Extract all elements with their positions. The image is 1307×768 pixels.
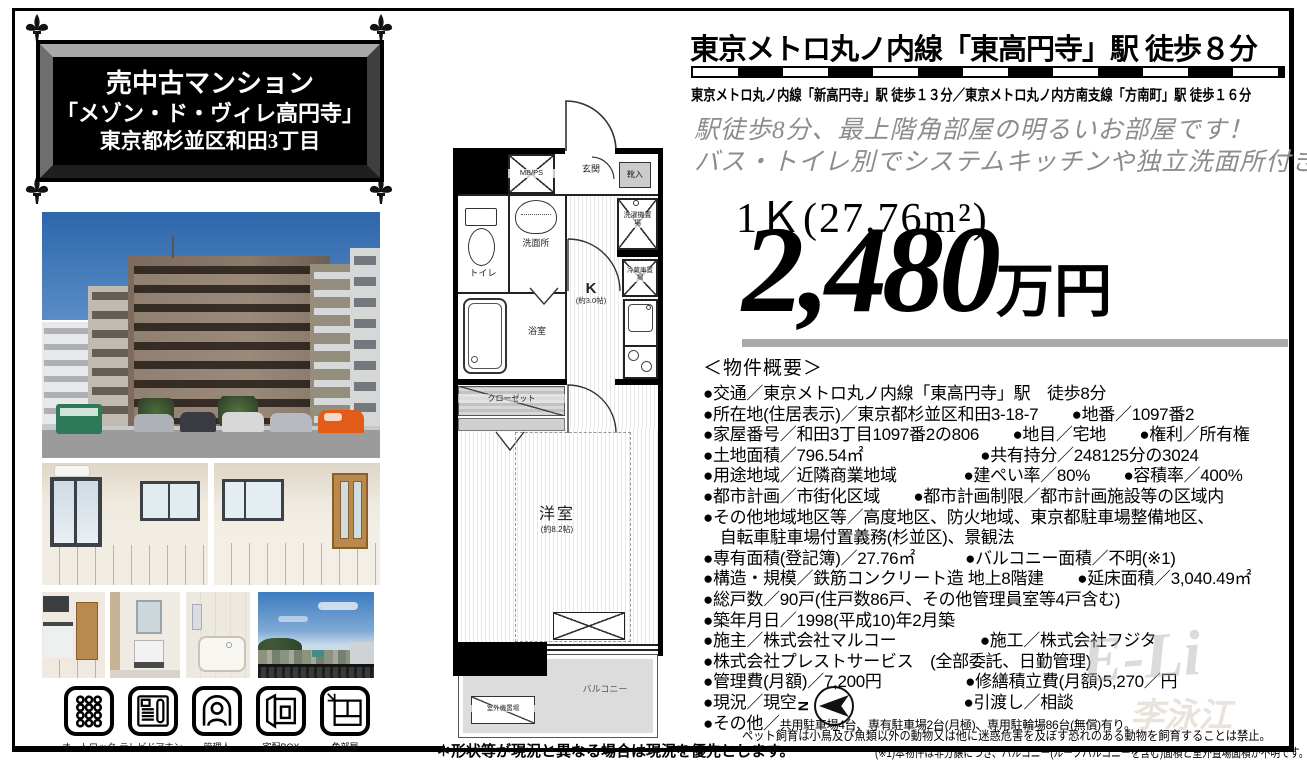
overview-line: ●その他地域地区等／高度地区、防火地域、東京都駐車場整備地区、 [703, 503, 1295, 524]
cloud [318, 602, 358, 610]
flyer-page: { "title_box": { "line1": "売中古マンション", "l… [0, 0, 1307, 768]
building-photo [42, 212, 380, 458]
wall [615, 379, 663, 385]
toilet-tank [465, 208, 497, 226]
overview-line: ●用途地域／近隣商業地域 ●建ぺい率／80% ●容積率／400% [703, 461, 1295, 482]
right-building-balconies [314, 272, 352, 424]
autolock-icon [64, 686, 114, 736]
ceiling-dash-outline [515, 432, 631, 642]
corner-room-label: 角部屋 [308, 740, 382, 753]
door-mullion [74, 477, 77, 547]
catch-copy-line1: 駅徒歩8分、最上階角部屋の明るいお部屋です！ [694, 110, 1254, 146]
wood-floor [42, 545, 208, 585]
car-silver [134, 414, 174, 432]
catch-copy-line2: バス・トイレ別でシステムキッチンや独立洗面所付き [694, 142, 1307, 178]
window-mullion [244, 479, 246, 521]
balcony-rail [258, 666, 374, 678]
room-window-box [553, 612, 625, 640]
antenna [172, 236, 174, 258]
interior-photo-1 [42, 463, 208, 585]
rail-top-bar [258, 664, 374, 667]
kitchen-size-label: (約3.0帖) [561, 297, 621, 306]
delivery-box-icon [256, 686, 306, 736]
overview-line: ●管理費(月額)／7,200円 ●修繕積立費(月額)5,270／円 [703, 667, 1295, 688]
overview-heading: ＜物件概要＞ [703, 353, 823, 380]
bathtub [198, 636, 246, 672]
main-station-heading: 東京メトロ丸ノ内線「東高円寺」駅 徒歩８分 [690, 26, 1290, 68]
shape-note: ＊形状等が現況と異なる場合は現況を優先とします。 [436, 740, 795, 761]
vanity-kick [134, 662, 164, 668]
overview-line: ●施主／株式会社マルコー ●施工／株式会社フジタ [703, 626, 1295, 647]
striped-divider-bar [691, 66, 1285, 78]
bath-label: 浴室 [513, 326, 561, 336]
room-door-arc [567, 384, 617, 434]
window [222, 479, 284, 521]
overview-list: ●交通／東京メトロ丸ノ内線「東高円寺」駅 徒歩8分 ●所在地(住居表示)／東京都… [703, 379, 1295, 729]
floor [110, 670, 180, 678]
balcony-note: (※1)本物件は非分譲につき、バルコニー(ルーフバルコニーを含む)面積と室外置場… [875, 742, 1307, 761]
overview-line: ●都市計画／市街化区域 ●都市計画制限／都市計画施設等の区域内 [703, 482, 1295, 503]
shoe-box-label: 靴入 [619, 170, 651, 179]
room-size-label: (約8.2帖) [505, 525, 609, 534]
bath-folding-door [529, 287, 559, 305]
balcony-view-photo [258, 592, 374, 678]
washroom-photo [110, 592, 180, 678]
wash-basin [515, 200, 557, 234]
wall [658, 148, 663, 656]
window-sash [547, 644, 658, 651]
closet-shelf [458, 418, 565, 431]
kitchen-label: K [571, 280, 611, 297]
teal-roof [312, 650, 324, 657]
overview-line: ●家屋番号／和田3丁目1097番2の806 ●地目／宅地 ●権利／所有権 [703, 420, 1295, 441]
range-hood [43, 596, 69, 612]
outdoor-unit-label: 室外機置場 [471, 705, 535, 712]
entrance-door-arc [565, 100, 617, 152]
closet-label: クローゼット [458, 394, 565, 403]
window-mullion [168, 481, 170, 521]
kitchen-counter [43, 622, 73, 658]
wall [617, 250, 663, 257]
road [42, 430, 380, 458]
basin-line [521, 214, 551, 215]
fridge-label: 冷蔵庫置場 [624, 267, 656, 282]
wood-floor [214, 543, 380, 585]
drain [226, 642, 232, 648]
washer-label: 洗濯機置場 [621, 212, 654, 228]
room-label: 洋室 [505, 506, 609, 524]
car-silver-2 [270, 413, 312, 432]
wall [615, 148, 663, 154]
floor-plan: MB/PS 玄関 靴入 洗濯機置場 冷蔵庫置場 トイレ 洗面所 浴室 クローゼッ… [445, 98, 667, 748]
watermark-text-2: 李泳江 [1130, 688, 1232, 737]
overview-line: ●専有面積(登記簿)／27.76㎡ ●バルコニー面積／不明(※1) [703, 544, 1295, 565]
wall-mass [453, 642, 547, 676]
watermark-text: E-Li [1078, 616, 1204, 698]
door [76, 602, 98, 660]
stove [623, 345, 658, 379]
title-plaque-bevel: 売中古マンション 「メゾン・ド・ヴィレ高円寺」 東京都杉並区和田3丁目 [40, 44, 380, 178]
burner [628, 350, 639, 361]
wash-label: 洗面所 [509, 238, 563, 248]
wood-door [332, 473, 368, 549]
bathroom-photo [186, 592, 250, 678]
washer-tap [633, 200, 639, 206]
title-plaque: 売中古マンション 「メゾン・ド・ヴィレ高円寺」 東京都杉並区和田3丁目 [36, 40, 384, 182]
sale-type-title: 売中古マンション [106, 68, 314, 101]
wood-floor [42, 660, 105, 678]
balcony-label: バルコニー [565, 684, 645, 694]
overview-line: ●株式会社プレストサービス (全部委託、日勤管理) [703, 647, 1295, 668]
faucet [646, 305, 651, 310]
overview-line: ●交通／東京メトロ丸ノ内線「東高円寺」駅 徒歩8分 [703, 379, 1295, 400]
bus-windows [60, 408, 98, 416]
building-address: 東京都杉並区和田3丁目 [100, 128, 321, 154]
car-dark [180, 412, 216, 432]
wall [453, 379, 567, 385]
kitchen-photo [42, 592, 105, 678]
delivery-box-label: 宅配BOX [244, 740, 318, 753]
window [140, 481, 200, 521]
price-unit: 万円 [996, 259, 1112, 324]
shower-panel [192, 604, 202, 630]
price-underline [742, 339, 1288, 347]
corner-room-icon [320, 686, 370, 736]
building-name: 「メゾン・ド・ヴィレ高円寺」 [56, 100, 364, 128]
genkan-door-arc [591, 156, 615, 180]
price-block: 2,480万円 [742, 208, 1112, 332]
far-right-windows [354, 256, 376, 424]
mirror [136, 600, 162, 634]
overview-line: ●所在地(住居表示)／東京都杉並区和田3-18-7 ●地番／1097番2 [703, 400, 1295, 421]
car-orange-window [324, 413, 342, 421]
toilet-bowl [468, 228, 495, 266]
mbps-label: MB/PS [508, 169, 555, 178]
bath-drain [471, 356, 478, 363]
manager-icon [192, 686, 242, 736]
intercom-icon [128, 686, 178, 736]
overview-line: ●構造・規模／鉄筋コンクリート造 地上8階建 ●延床面積／3,040.49㎡ [703, 564, 1295, 585]
toilet-label: トイレ [459, 268, 507, 278]
overview-line: ●総戸数／90戸(住戸数86戸、その他管理員室等4戸含む) [703, 585, 1295, 606]
manager-label: 管理人 [180, 740, 254, 753]
wall-mass [458, 154, 508, 195]
cloud [278, 616, 308, 622]
car-white-van [222, 412, 264, 432]
air-conditioner [54, 465, 90, 477]
door-glass [340, 481, 349, 539]
price-amount: 2,480 [742, 201, 996, 338]
intercom-label: テレビドアホン [114, 740, 188, 753]
sub-station-heading: 東京メトロ丸ノ内線「新高円寺」駅 徒歩１３分／東京メトロ丸ノ内方南支線「方南町」… [691, 84, 1251, 105]
burner [641, 361, 652, 372]
interior-photo-2 [214, 463, 380, 585]
door-glass [353, 481, 362, 539]
